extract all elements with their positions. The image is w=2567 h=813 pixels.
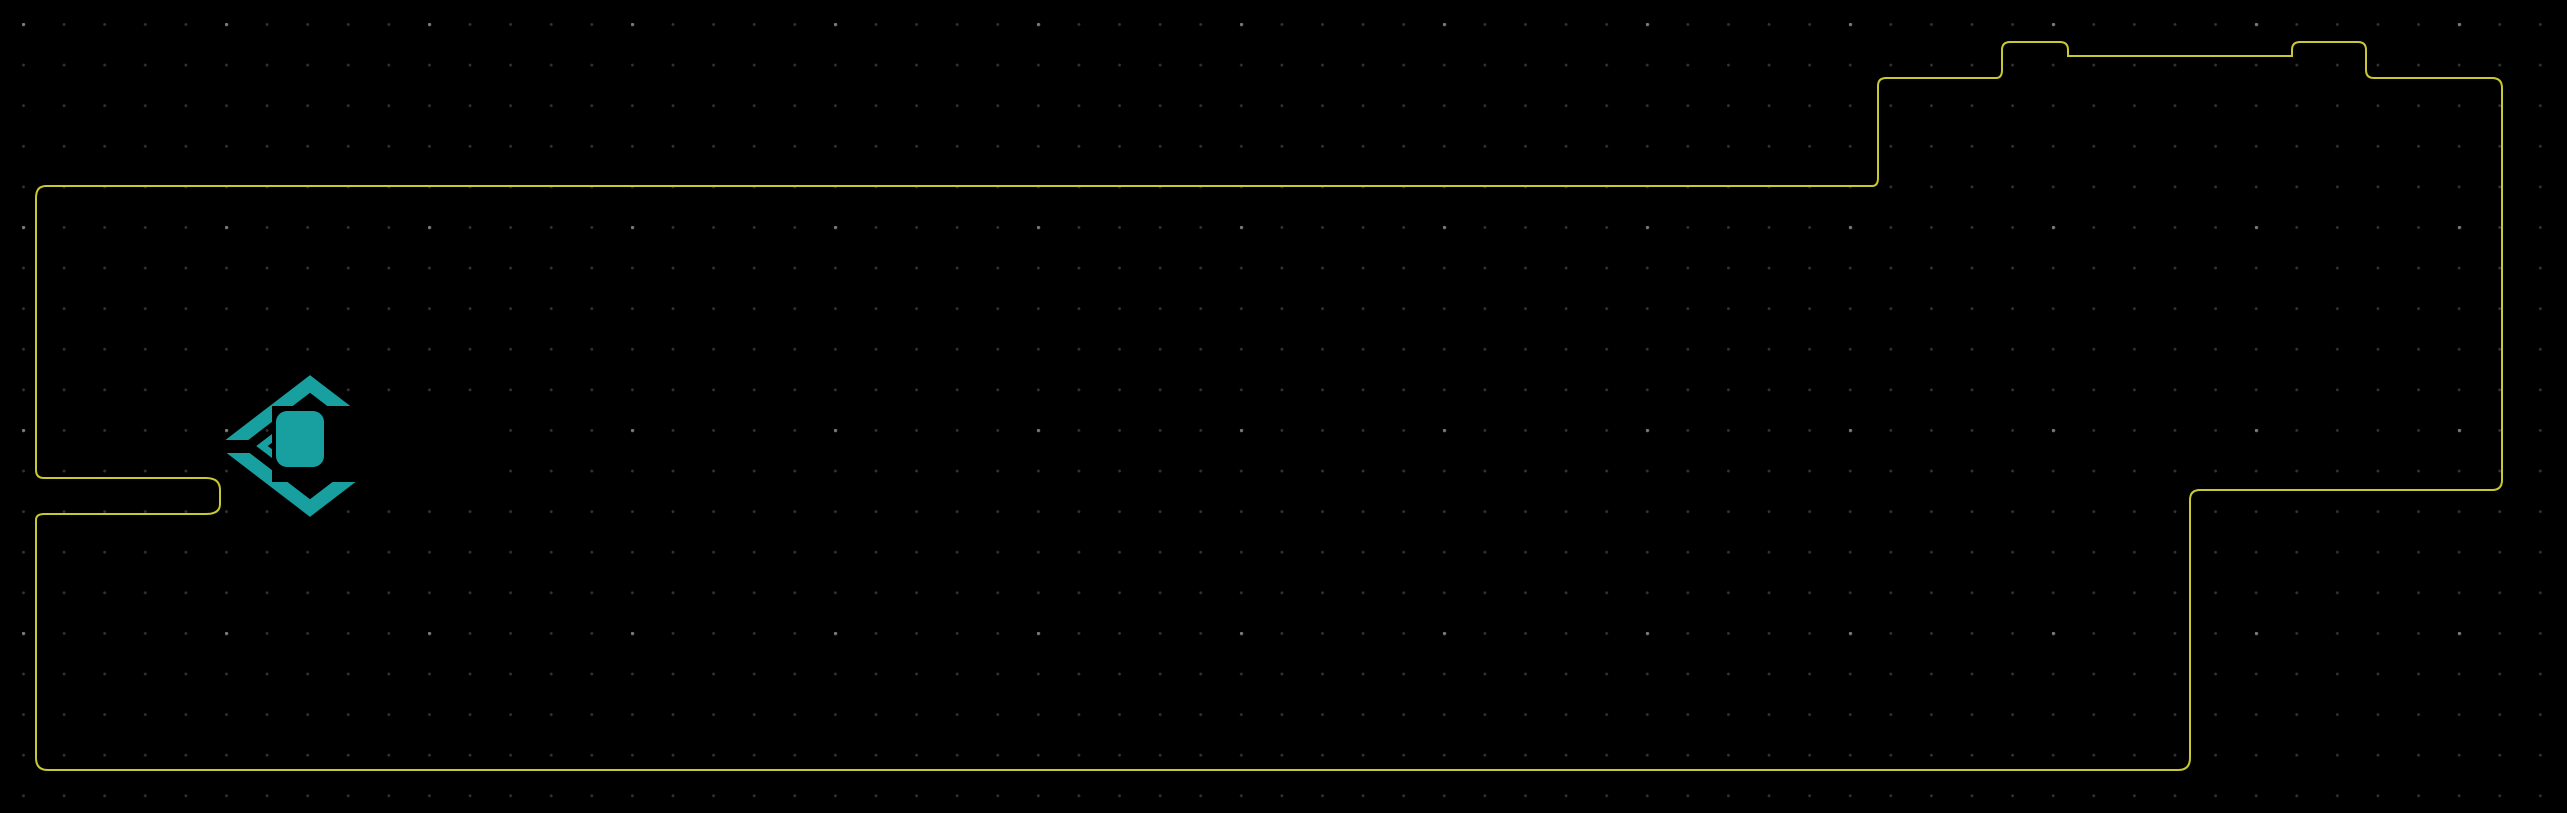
pcb-canvas[interactable] [0, 0, 2567, 813]
logo-p-badge [276, 411, 324, 467]
pcb-layout-svg[interactable] [0, 0, 2567, 813]
pixelfx-logo [214, 384, 484, 508]
